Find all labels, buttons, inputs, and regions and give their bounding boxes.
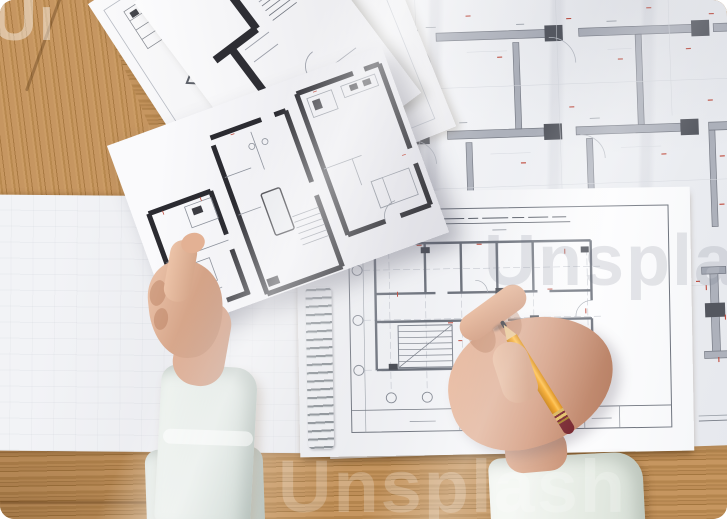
left-sleeve-cuff-fold — [163, 428, 253, 446]
photo-architect-floor-plans: Unsplash Unsplash Unsplash — [0, 0, 727, 519]
notebook-spiral-binding — [305, 287, 334, 449]
